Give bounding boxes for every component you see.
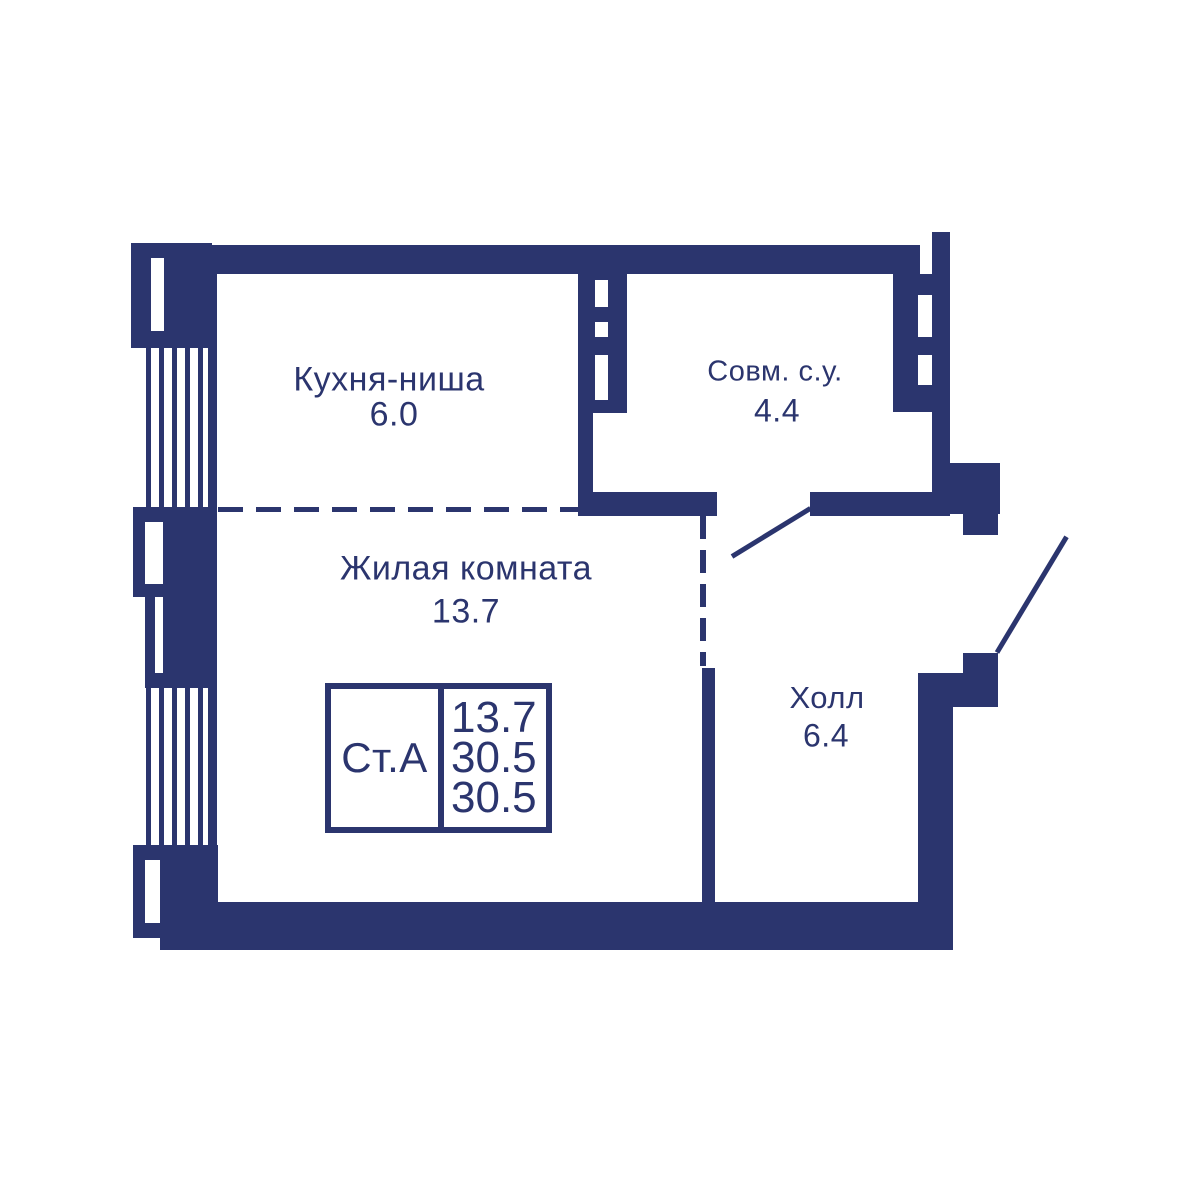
wall-top-exterior [211,245,920,274]
room-label-hall: Холл [789,680,864,716]
room-area-kitchen: 6.0 [370,396,419,435]
pier-top [131,243,212,348]
stamp-type-label: Ст.А [331,689,438,827]
room-area-bathroom: 4.4 [754,393,800,430]
duct-slot-left-3 [595,355,608,400]
room-area-living: 13.7 [432,593,500,632]
wall-bottom-exterior [160,902,953,950]
duct-connector-right-1 [918,274,932,295]
room-label-kitchen: Кухня-ниша [293,361,484,400]
room-label-bathroom: Совм. с.у. [707,356,842,389]
wall-right-step-lower [963,514,998,535]
entrance-jamb-upper [963,653,998,673]
duct-connector-right-3 [918,385,932,412]
duct-column-right [893,274,918,412]
wall-left-interior-line [208,245,217,902]
stamp-area-mid: 30.5 [451,738,546,778]
pier-middle-window-slot-1 [145,522,163,584]
pier-top-window-slot [151,258,164,331]
door-swing-entrance [995,535,1069,653]
duct-connector-right-2 [918,337,932,355]
wall-right-step-upper [948,463,1000,514]
balcony-glazing-lower [146,688,203,845]
entrance-jamb-band [918,673,998,707]
door-swing-bathroom [731,506,812,558]
room-area-hall: 6.4 [803,718,849,755]
dashed-boundary-kitchen-living [218,507,578,512]
dashed-boundary-living-hall [700,516,706,666]
floor-plan: Кухня-ниша 6.0 Совм. с.у. 4.4 Жилая комн… [0,0,1200,1200]
wall-bathroom-bottom-right [810,492,950,516]
pier-middle-window-slot-2 [155,597,163,673]
stamp-areas: 13.7 30.5 30.5 [444,689,546,827]
stamp-area-total: 30.5 [451,778,546,818]
apartment-stamp: Ст.А 13.7 30.5 30.5 [325,683,552,833]
balcony-glazing-upper [146,348,203,507]
wall-bathroom-bottom-left [578,492,717,516]
duct-slot-left-2 [595,322,608,337]
wall-living-hall [702,668,715,902]
stamp-living-area: 13.7 [451,698,546,738]
wall-right-hall [918,707,953,903]
room-label-living: Жилая комната [340,550,592,589]
duct-slot-left-1 [595,280,608,307]
wall-kitchen-bathroom [578,274,593,497]
pier-bottom-window-slot [145,860,160,923]
